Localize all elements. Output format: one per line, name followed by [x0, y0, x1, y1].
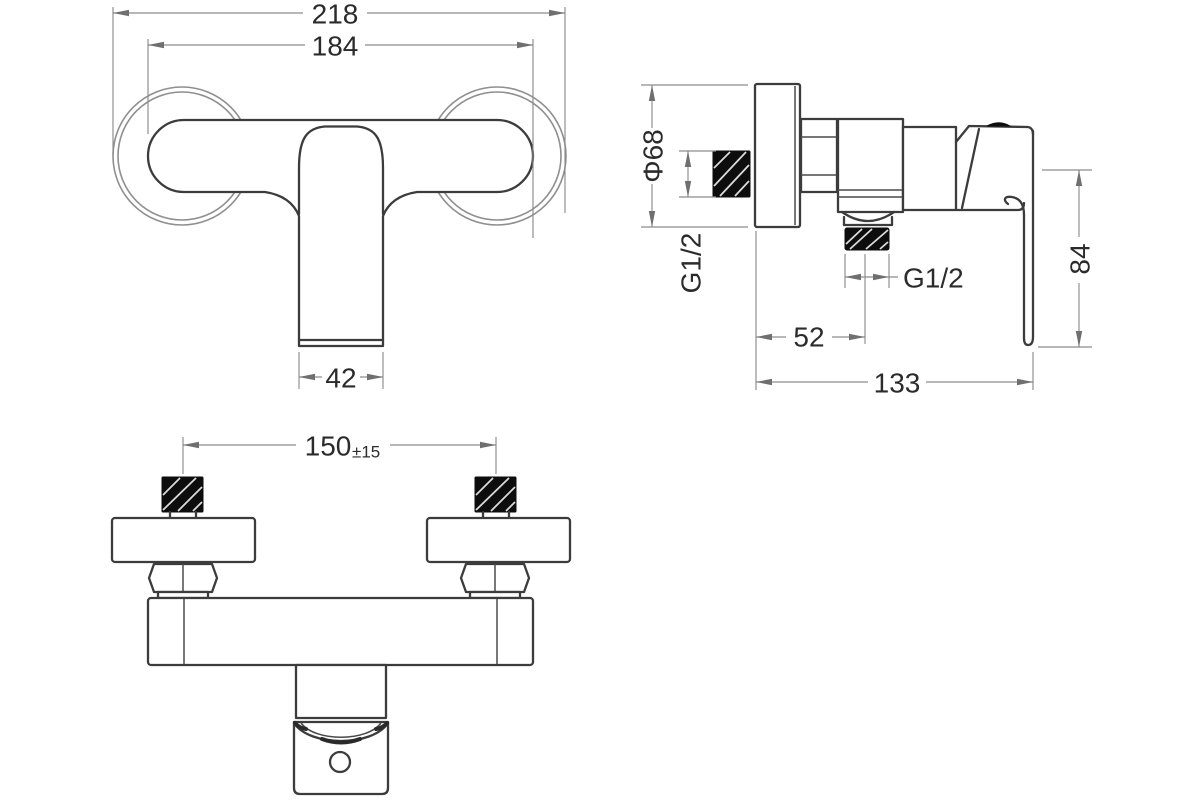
handle-lever	[956, 123, 1033, 345]
valve-body	[838, 119, 956, 212]
drawing-page: 218 184 42	[0, 0, 1200, 800]
dim-total-depth: 133	[756, 352, 1033, 399]
cartridge-housing	[903, 127, 956, 210]
inlet-thread-stub	[713, 151, 750, 197]
dim-outlet-thread-label: G1/2	[903, 263, 964, 294]
dim-inlet-thread: G1/2	[676, 151, 716, 293]
dim-handle-length: 84	[1038, 170, 1096, 347]
dim-wall-to-outlet-label: 52	[793, 322, 824, 353]
left-mounting-nut	[149, 564, 217, 598]
dim-outlet-thread: G1/2	[845, 254, 964, 344]
mixer-body-silhouette	[148, 120, 533, 346]
dim-overall-width-label: 218	[312, 0, 359, 30]
wall-plate	[755, 84, 800, 227]
outlet-connection	[842, 212, 894, 250]
left-wall-plate	[112, 518, 255, 562]
dim-inlet-spacing-label: 150	[305, 431, 352, 462]
dim-handle-length-label: 84	[1065, 243, 1096, 274]
front-view: 218 184 42	[113, 0, 566, 394]
dim-inlet-spacing-tolerance: ±15	[352, 442, 380, 461]
right-inlet-stub	[475, 477, 516, 517]
left-inlet-stub	[162, 477, 203, 517]
body-bar	[148, 598, 533, 665]
dim-total-depth-label: 133	[874, 368, 921, 399]
dim-escutcheon-diameter-label: Φ68	[638, 129, 669, 182]
indicator-dot	[987, 123, 1010, 126]
faucet-technical-drawing: 218 184 42	[0, 0, 1200, 800]
handle-bottom	[294, 665, 388, 794]
right-wall-plate	[427, 518, 570, 562]
dim-handle-width: 42	[299, 352, 383, 394]
dim-wall-to-outlet: 52	[756, 231, 865, 390]
dim-handle-width-label: 42	[325, 363, 356, 394]
right-mounting-nut	[461, 564, 529, 598]
bottom-view: 150 ±15	[112, 431, 570, 794]
side-view: Φ68 G1/2 G1/2 52	[638, 84, 1096, 399]
dim-inlet-spacing: 150 ±15	[183, 431, 496, 474]
mounting-nut	[801, 119, 837, 192]
dim-body-width-label: 184	[312, 31, 359, 62]
dim-inlet-thread-label: G1/2	[676, 233, 707, 294]
